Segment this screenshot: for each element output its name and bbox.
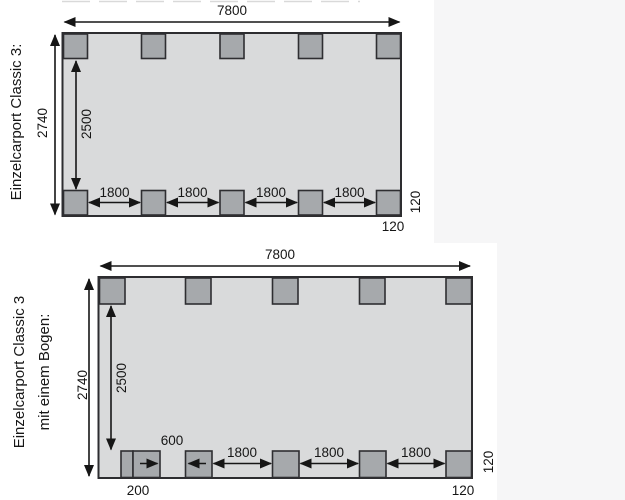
post-top-5	[377, 34, 401, 59]
dim-corner-post-label: 120	[382, 219, 405, 234]
dim-inner-depth-label: 2500	[114, 363, 129, 393]
diagram-title: Einzelcarport Classic 3:	[8, 44, 25, 201]
post-bottom-4	[360, 451, 387, 478]
dim-spacing-label: 1800	[334, 185, 364, 200]
dim-depth-label: 2740	[75, 370, 90, 400]
post-bottom-1	[64, 191, 88, 216]
post-bottom-4	[299, 191, 323, 216]
post-top-4	[299, 34, 323, 59]
dim-width-label: 7800	[265, 247, 295, 262]
dim-spacing-label: 1800	[401, 445, 431, 460]
dim-spacing-label: 1800	[314, 445, 344, 460]
dim-side-post-label: 120	[481, 451, 496, 474]
dim-spacing-label: 1800	[227, 445, 257, 460]
post-top-3	[273, 278, 299, 304]
post-top-2	[186, 278, 212, 304]
post-bottom-5	[377, 191, 401, 216]
dim-width-label: 7800	[217, 3, 247, 18]
dim-side-post-label: 120	[408, 191, 423, 214]
post-top-2	[142, 34, 166, 59]
post-bottom-3	[220, 191, 244, 216]
dim-arch-gap-label: 600	[161, 433, 184, 448]
post-top-3	[220, 34, 244, 59]
post-top-4	[360, 278, 386, 304]
dim-spacing-label: 1800	[177, 185, 207, 200]
post-bottom-2	[142, 191, 166, 216]
post-bottom-3	[273, 451, 300, 478]
post-arch-strip	[121, 451, 133, 478]
post-top-1	[100, 278, 126, 304]
carport-dimension-sheet: Einzelcarport Classic 3: 7800 2740 2500 …	[0, 0, 625, 500]
dim-depth-label: 2740	[35, 108, 50, 138]
dim-corner-post-label: 120	[452, 483, 475, 498]
floor-plan-classic3: Einzelcarport Classic 3: 7800 2740 2500 …	[0, 0, 625, 245]
dim-spacing-label: 1800	[99, 185, 129, 200]
dim-inner-depth-label: 2500	[79, 109, 94, 139]
dim-arch-post-label: 200	[127, 483, 150, 498]
post-top-1	[64, 34, 88, 59]
dim-spacing-label: 1800	[256, 185, 286, 200]
floor-plan-classic3-bogen: Einzelcarport Classic 3 mit einem Bogen:…	[0, 245, 625, 500]
diagram-title-line2: mit einem Bogen:	[36, 314, 53, 431]
diagram-title-line1: Einzelcarport Classic 3	[11, 296, 28, 449]
post-top-5	[446, 278, 472, 304]
post-bottom-5	[446, 451, 472, 478]
